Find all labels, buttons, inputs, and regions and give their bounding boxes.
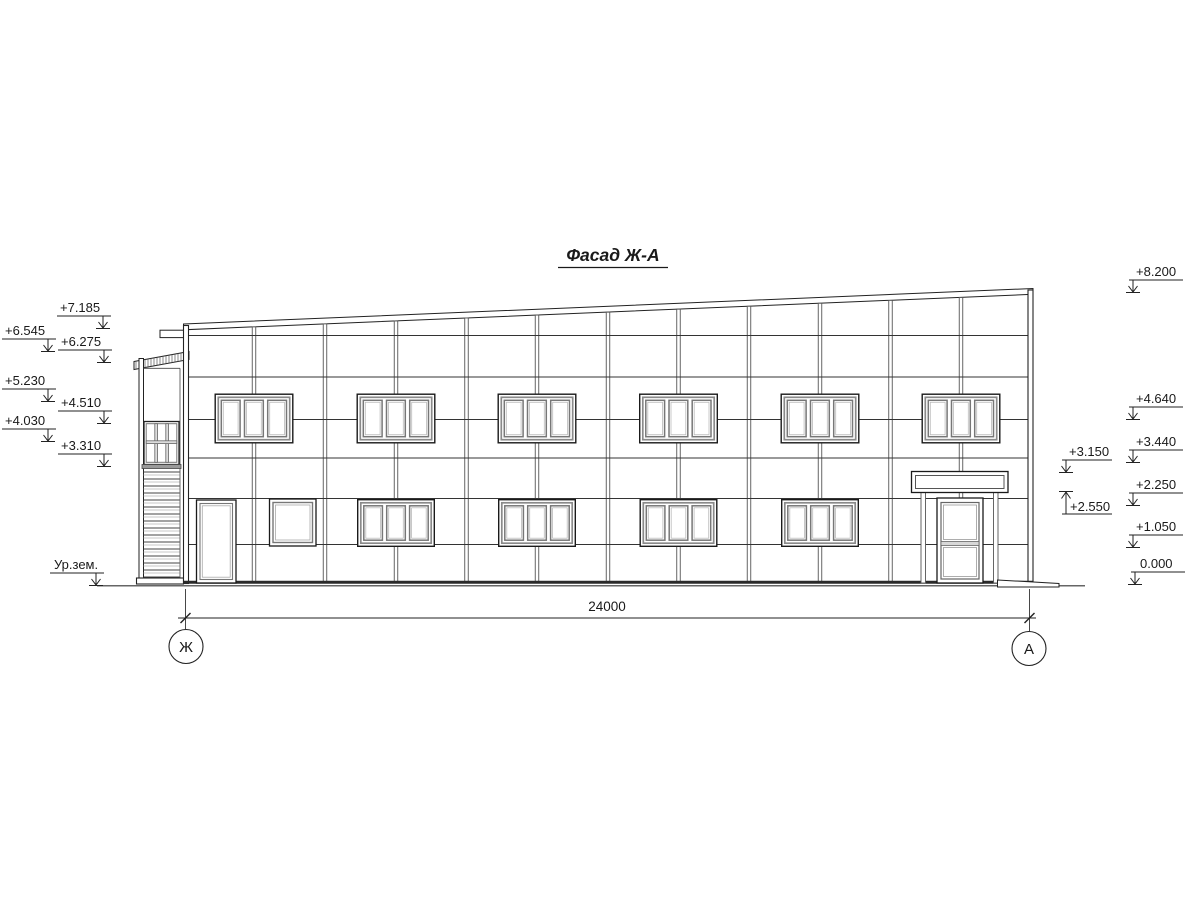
elevation-mark: [1126, 450, 1183, 463]
canopy-post-right: [994, 493, 999, 584]
facade-right-column: [1028, 290, 1033, 583]
elevation-mark-label: +3.310: [61, 438, 101, 453]
axis-right: А: [1012, 632, 1046, 666]
window: [358, 500, 435, 547]
window: [499, 500, 576, 547]
elevation-mark: [2, 389, 56, 402]
elevation-mark-label: +3.440: [1136, 434, 1176, 449]
canopy-post-left: [921, 493, 926, 584]
elevation-mark-label: +7.185: [60, 300, 100, 315]
elevation-mark: [1126, 493, 1183, 506]
window: [922, 394, 1000, 443]
entrance-door: [937, 498, 983, 583]
axis-left: Ж: [169, 630, 203, 664]
window: [640, 394, 718, 443]
elevation-mark: [1126, 407, 1183, 420]
stair-window: [142, 422, 181, 469]
elevation-mark-label: +8.200: [1136, 264, 1176, 279]
elevation-mark-label: +4.030: [5, 413, 45, 428]
side-door: [197, 500, 237, 583]
stair-treads: [144, 472, 180, 577]
elevation-marks-right: [1126, 280, 1185, 585]
square-window: [270, 499, 317, 546]
window: [781, 394, 859, 443]
window: [215, 394, 293, 443]
elevation-mark-label: +2.250: [1136, 477, 1176, 492]
dimension: 24000: [178, 589, 1036, 631]
stair-tower: [134, 349, 189, 584]
elevation-mark-label: +1.050: [1136, 519, 1176, 534]
stair-window-sill: [142, 465, 181, 469]
elevation-marks-left-labels: +7.185 +6.545 +6.275 +5.230 +4.510 +4.03…: [5, 300, 101, 572]
elevation-marks-right-labels: +8.200 +4.640 +3.440 +2.250 +1.050 0.000: [1136, 264, 1176, 571]
entrance: [912, 472, 1060, 588]
axis-label-left: Ж: [179, 639, 193, 656]
axis-label-right: А: [1024, 641, 1034, 658]
elevation-mark: [2, 339, 56, 352]
elevation-mark: [58, 350, 112, 363]
elevation-mark-label: +3.150: [1069, 444, 1109, 459]
window: [357, 394, 435, 443]
elevation-mark: [2, 429, 56, 442]
window: [498, 394, 576, 443]
elevation-mark-ground: [50, 573, 104, 586]
elevation-mark: [1128, 572, 1185, 585]
elevation-mark-label: +2.550: [1070, 499, 1110, 514]
elevation-mark-label: +4.510: [61, 395, 101, 410]
elevation-mark-label: +6.545: [5, 323, 45, 338]
elevation-mark-label: +4.640: [1136, 391, 1176, 406]
elevation-mark: [1126, 280, 1183, 293]
elevation-mark: [58, 411, 112, 424]
stair-plinth: [137, 578, 184, 584]
elevation-mark: [1126, 535, 1183, 548]
elevation-mark-label: +6.275: [61, 334, 101, 349]
elevation-mark-label: 0.000: [1140, 556, 1173, 571]
facade-left-column: [184, 326, 189, 584]
entrance-canopy: [912, 472, 1009, 493]
stair-treads-shadow: [144, 475, 180, 573]
elevation-mark: [58, 454, 112, 467]
dimension-label: 24000: [588, 599, 626, 614]
elevation-mark-label: Ур.зем.: [54, 557, 98, 572]
elevation-mark: [57, 316, 111, 329]
elevation-mark: [1059, 460, 1112, 473]
facade-drawing: Фасад Ж-А: [0, 0, 1200, 900]
drawing-canvas: Фасад Ж-А: [0, 0, 1200, 900]
window: [640, 500, 717, 547]
drawing-title: Фасад Ж-А: [566, 245, 659, 265]
elevation-mark-label: +5.230: [5, 373, 45, 388]
window: [782, 500, 859, 547]
